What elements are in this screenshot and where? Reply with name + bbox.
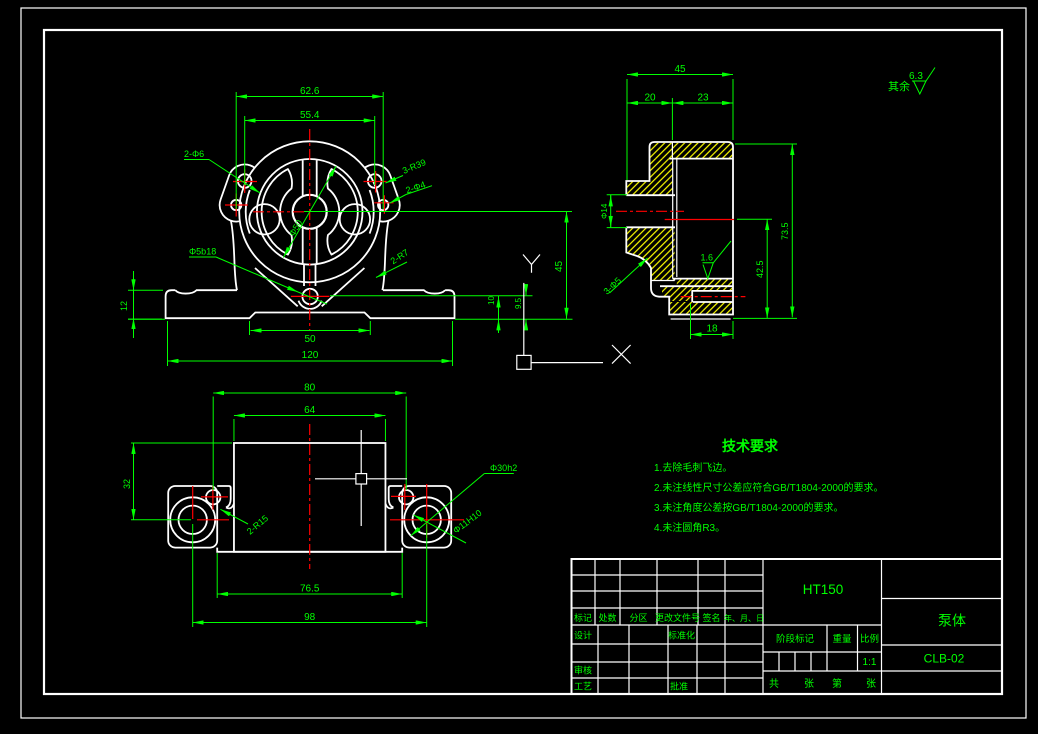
svg-text:比例: 比例 <box>860 633 879 645</box>
svg-text:CLB-02: CLB-02 <box>924 652 965 666</box>
svg-text:分区: 分区 <box>629 613 647 623</box>
svg-text:1.去除毛刺飞边。: 1.去除毛刺飞边。 <box>654 461 732 474</box>
svg-text:1.6: 1.6 <box>701 253 714 263</box>
svg-text:阶段标记: 阶段标记 <box>776 633 815 645</box>
svg-text:签名: 签名 <box>702 612 720 623</box>
svg-text:张: 张 <box>804 678 814 690</box>
svg-text:23: 23 <box>697 93 709 104</box>
svg-text:工艺: 工艺 <box>574 682 592 692</box>
svg-text:Φ14: Φ14 <box>600 203 609 219</box>
svg-text:技术要求: 技术要求 <box>722 438 779 454</box>
svg-text:标准化: 标准化 <box>668 630 695 641</box>
svg-text:80: 80 <box>304 383 316 394</box>
svg-text:共: 共 <box>769 678 779 690</box>
svg-text:张: 张 <box>866 678 876 690</box>
svg-text:其余: 其余 <box>888 79 910 93</box>
svg-text:重量: 重量 <box>832 633 852 645</box>
svg-text:泵体: 泵体 <box>938 613 966 629</box>
svg-text:32: 32 <box>122 479 132 489</box>
svg-text:设计: 设计 <box>574 630 592 641</box>
svg-text:76.5: 76.5 <box>300 584 320 595</box>
svg-text:2-Φ6: 2-Φ6 <box>184 149 204 159</box>
svg-text:98: 98 <box>304 612 316 623</box>
svg-text:4.未注圆角R3。: 4.未注圆角R3。 <box>654 521 725 534</box>
svg-text:62.6: 62.6 <box>300 86 320 97</box>
svg-text:审核: 审核 <box>574 665 592 676</box>
svg-text:50: 50 <box>304 334 316 345</box>
svg-text:45: 45 <box>554 260 565 272</box>
svg-text:HT150: HT150 <box>803 582 844 597</box>
svg-text:2.未注线性尺寸公差应符合GB/T1804-2000的要求。: 2.未注线性尺寸公差应符合GB/T1804-2000的要求。 <box>654 481 884 494</box>
svg-text:120: 120 <box>302 350 319 361</box>
svg-text:73.5: 73.5 <box>780 222 790 240</box>
svg-text:处数: 处数 <box>598 612 616 623</box>
svg-text:标记: 标记 <box>574 612 592 623</box>
svg-text:20: 20 <box>644 93 656 104</box>
svg-text:年、月、日: 年、月、日 <box>724 613 764 623</box>
svg-text:Φ5b18: Φ5b18 <box>189 247 216 257</box>
svg-text:3.未注角度公差按GB/T1804-2000的要求。: 3.未注角度公差按GB/T1804-2000的要求。 <box>654 501 844 514</box>
svg-text:45: 45 <box>674 64 686 75</box>
svg-text:Φ30h2: Φ30h2 <box>490 463 517 473</box>
svg-text:42.5: 42.5 <box>755 260 765 278</box>
svg-text:9.5: 9.5 <box>514 297 523 309</box>
svg-text:12: 12 <box>119 301 129 311</box>
svg-text:6.3: 6.3 <box>909 71 923 82</box>
svg-text:1:1: 1:1 <box>863 657 877 668</box>
svg-text:18: 18 <box>706 324 718 335</box>
svg-text:10: 10 <box>487 296 496 305</box>
svg-text:64: 64 <box>304 405 316 416</box>
svg-text:55.4: 55.4 <box>300 110 320 121</box>
svg-text:第: 第 <box>832 677 842 690</box>
svg-text:更改文件号: 更改文件号 <box>655 612 700 623</box>
svg-text:批准: 批准 <box>670 681 688 692</box>
